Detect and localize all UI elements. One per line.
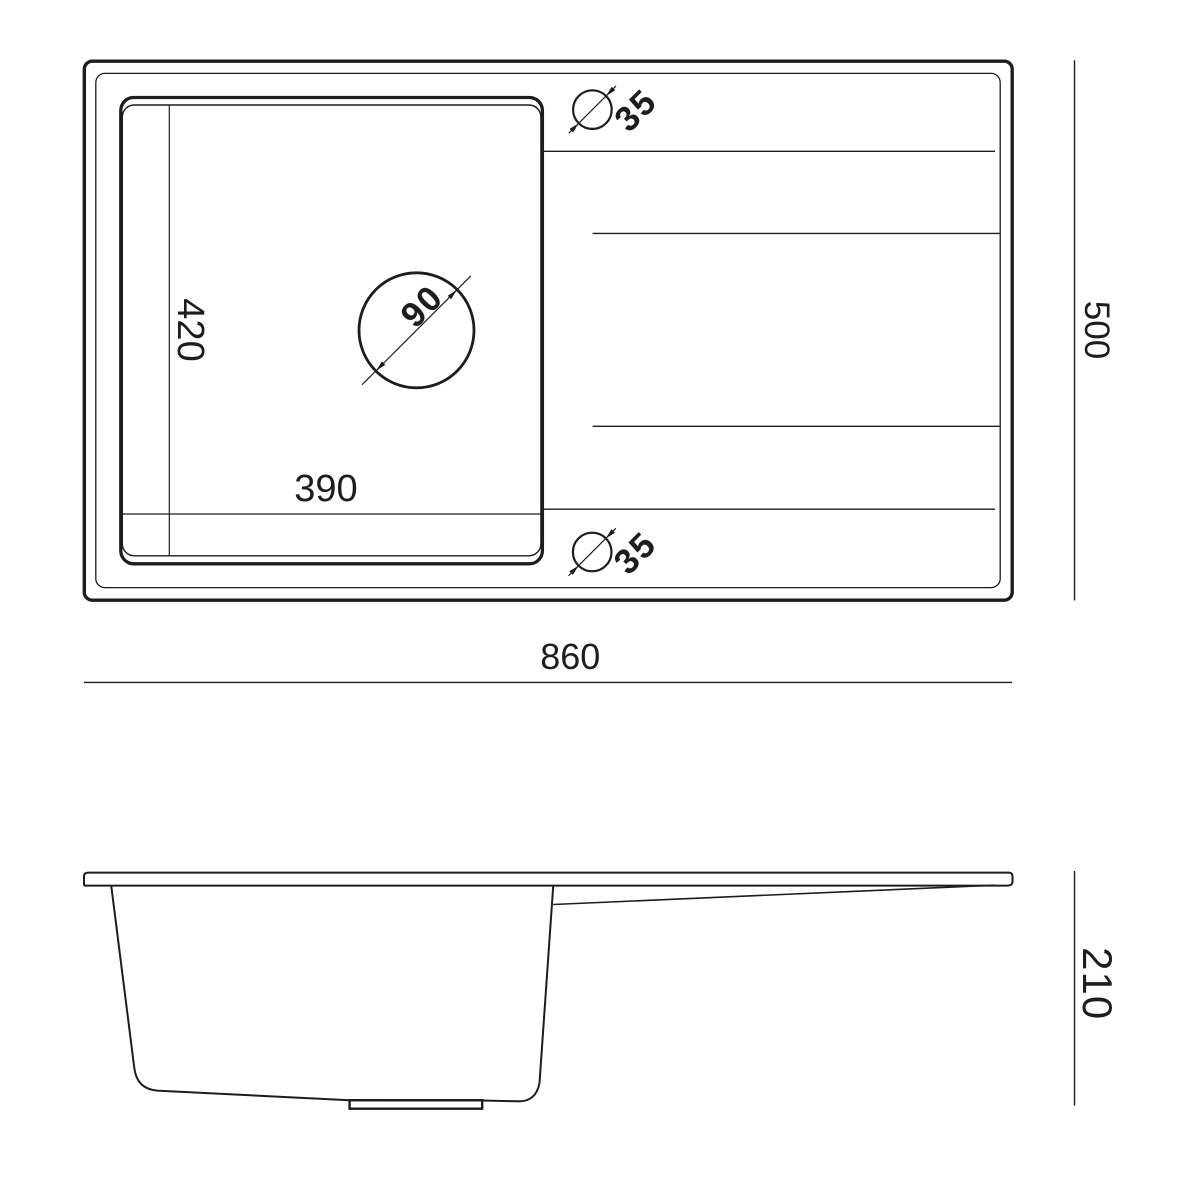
svg-text:210: 210 bbox=[1074, 947, 1121, 1020]
svg-text:420: 420 bbox=[169, 298, 211, 361]
svg-text:390: 390 bbox=[294, 468, 357, 510]
svg-text:860: 860 bbox=[540, 636, 600, 677]
svg-text:500: 500 bbox=[1077, 301, 1116, 359]
